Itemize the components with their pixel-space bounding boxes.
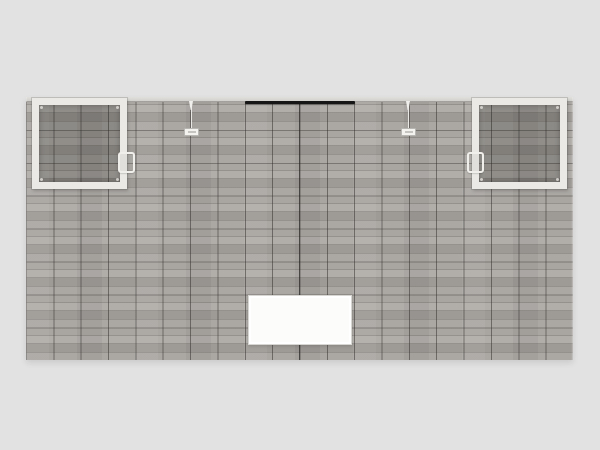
exhibit-render-canvas [0,0,600,450]
clip-tag [401,128,416,136]
case-corner-bracket [40,106,43,109]
case-corner-bracket [480,106,483,109]
exhibit-back-wall [26,97,573,360]
case-corner-bracket [556,106,559,109]
display-case-right [472,98,567,189]
case-corner-bracket [116,178,119,181]
clip-tag-label-area [405,131,413,133]
clip-tag-label-area [188,131,196,133]
case-corner-bracket [40,178,43,181]
clip-wire [408,101,409,129]
clip-tag [184,128,199,136]
case-corner-bracket [480,178,483,181]
case-corner-bracket [116,106,119,109]
display-case-left-handle [118,152,135,173]
white-insert-panel [248,295,352,345]
clip-wire [191,101,192,129]
hanging-light-bar [245,101,355,104]
case-corner-bracket [556,178,559,181]
display-case-right-handle [467,152,484,173]
display-case-left [32,98,127,189]
